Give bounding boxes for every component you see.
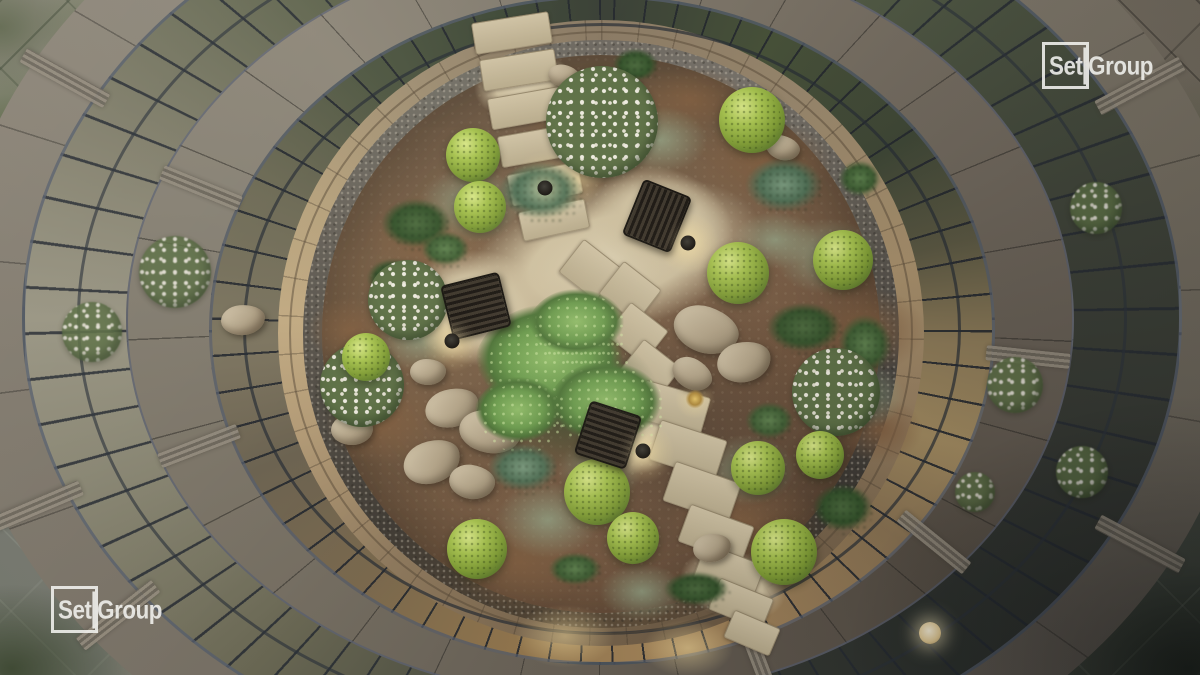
window-flower-shrub [62, 302, 122, 362]
conifer-shrub [745, 402, 800, 447]
topiary-sphere [342, 333, 390, 381]
window-flower-shrub [987, 357, 1043, 413]
setl-group-watermark-bottom-left: SetGroup [51, 586, 171, 633]
window-flower-shrub [955, 472, 995, 512]
topiary-sphere [607, 512, 659, 564]
topiary-sphere [707, 242, 769, 304]
corridor-globe-lamp [919, 622, 941, 644]
watermark-set: Set [58, 594, 92, 625]
conifer-shrub [548, 552, 608, 592]
scene-canvas: SetGroup SetGroup [0, 0, 1200, 675]
white-flower-shrub [546, 66, 658, 178]
topiary-sphere [751, 519, 817, 585]
bollard-lamp [538, 181, 553, 196]
conifer-shrub [838, 160, 886, 204]
window-flower-shrub [1070, 182, 1122, 234]
window-flower-shrub [1056, 446, 1108, 498]
watermark-set: Set [1049, 50, 1083, 81]
window-flower-shrub [139, 236, 211, 308]
bollard-lamp [681, 236, 696, 251]
conifer-shrub [487, 443, 567, 501]
light-pool [510, 601, 620, 671]
topiary-sphere [731, 441, 785, 495]
conifer-shrub [812, 483, 880, 541]
watermark-letter-l-bar [1083, 47, 1086, 84]
watermark-group: Group [97, 594, 162, 625]
watermark-group: Group [1088, 50, 1153, 81]
conifer-shrub [663, 571, 738, 613]
topiary-sphere [447, 519, 507, 579]
setl-group-watermark-top-right: SetGroup [1042, 42, 1162, 89]
bollard-lamp [445, 334, 460, 349]
watermark-text: SetGroup [58, 591, 162, 628]
white-flower-shrub [792, 348, 880, 436]
bollard-lamp [636, 444, 651, 459]
light-pool [638, 616, 738, 675]
white-flower-shrub [368, 260, 448, 340]
topiary-sphere [719, 87, 785, 153]
watermark-letter-l-bar [92, 591, 95, 628]
topiary-sphere [796, 431, 844, 479]
topiary-sphere [813, 230, 873, 290]
central-tree-canopy [527, 288, 637, 373]
watermark-text: SetGroup [1049, 47, 1153, 84]
lit-grass-accent [685, 389, 705, 409]
topiary-sphere [454, 181, 506, 233]
topiary-sphere [446, 128, 500, 182]
conifer-shrub [744, 157, 832, 223]
